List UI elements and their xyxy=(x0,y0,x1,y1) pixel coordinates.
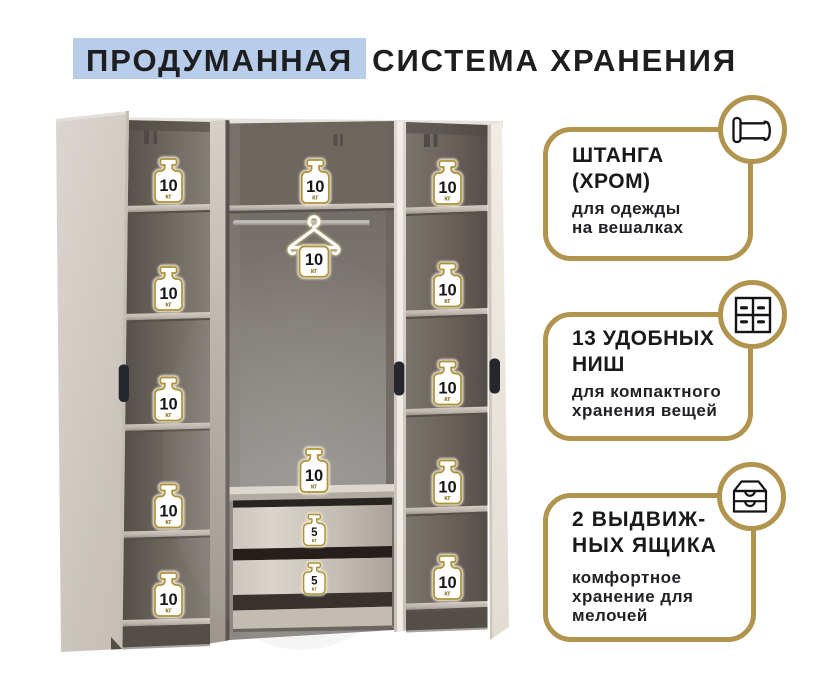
svg-text:кг: кг xyxy=(311,268,318,275)
svg-text:кг: кг xyxy=(312,192,319,201)
svg-text:кг: кг xyxy=(444,296,451,305)
svg-text:кг: кг xyxy=(444,394,451,403)
svg-text:кг: кг xyxy=(165,191,172,200)
svg-text:кг: кг xyxy=(165,517,172,526)
svg-text:кг: кг xyxy=(312,587,318,593)
svg-text:кг: кг xyxy=(311,481,318,490)
svg-text:кг: кг xyxy=(444,588,451,597)
svg-text:кг: кг xyxy=(444,493,451,502)
svg-text:кг: кг xyxy=(165,299,172,308)
svg-text:кг: кг xyxy=(444,193,451,202)
svg-text:кг: кг xyxy=(312,538,318,544)
svg-text:кг: кг xyxy=(165,605,172,614)
svg-text:10: 10 xyxy=(305,251,323,269)
svg-text:кг: кг xyxy=(165,410,172,419)
